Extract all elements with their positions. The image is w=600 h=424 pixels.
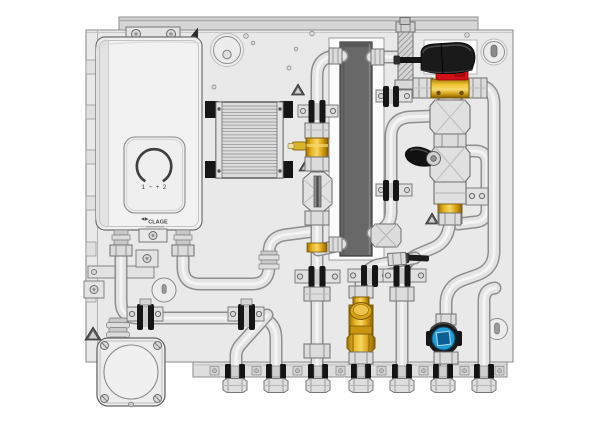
svg-text:CLAGE: CLAGE	[148, 220, 168, 226]
svg-text:1 − + 2: 1 − + 2	[142, 184, 167, 191]
